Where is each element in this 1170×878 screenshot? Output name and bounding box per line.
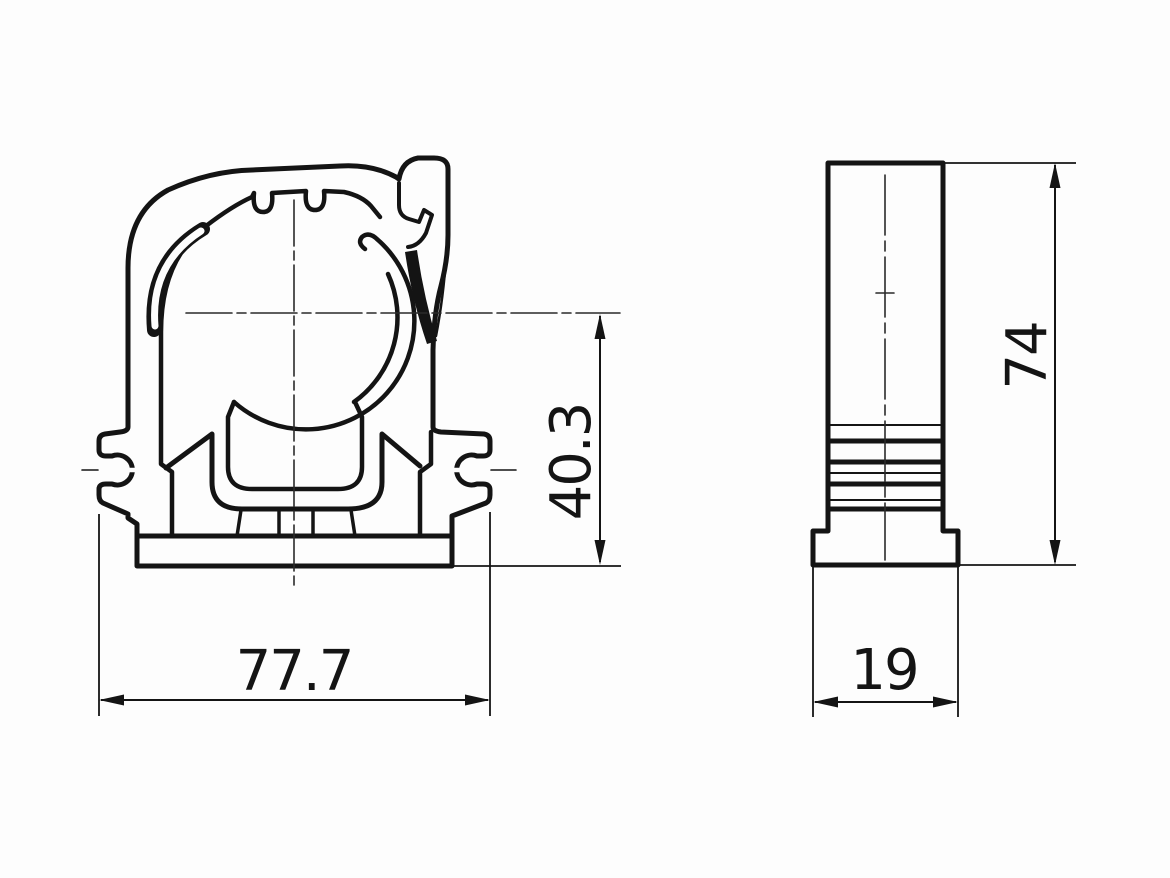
arrowhead-left [99, 695, 124, 706]
front-inner-wall-right [420, 432, 431, 536]
dim-label-side-height: 74 [995, 322, 1060, 389]
dimension-side-height: 74 [945, 163, 1076, 565]
latch-hook [399, 183, 432, 247]
technical-drawing: 40.3 77.7 74 19 [0, 0, 1170, 878]
dimension-side-width: 19 [813, 567, 958, 717]
front-view [82, 158, 620, 588]
channel-outer [166, 434, 420, 509]
arrowhead-right [465, 695, 490, 706]
bore-arc-right [354, 274, 397, 402]
side-centerlines [876, 175, 894, 560]
arrowhead-right [933, 697, 958, 708]
bore-arc-main [234, 235, 414, 430]
arrowhead-down [1050, 540, 1061, 565]
dimension-front-height: 40.3 [452, 314, 621, 566]
front-centerlines [186, 200, 620, 588]
dim-label-side-width: 19 [850, 638, 917, 703]
dim-label-front-width: 77.7 [236, 639, 353, 704]
arrowhead-down [595, 540, 606, 565]
drawing-canvas: 40.3 77.7 74 19 [0, 0, 1170, 878]
dim-label-front-height: 40.3 [539, 404, 604, 521]
arrowhead-up [1050, 163, 1061, 188]
front-pedestal-ribs [237, 510, 355, 536]
arrowhead-up [595, 314, 606, 339]
side-view [813, 163, 958, 565]
arrowhead-left [813, 697, 838, 708]
